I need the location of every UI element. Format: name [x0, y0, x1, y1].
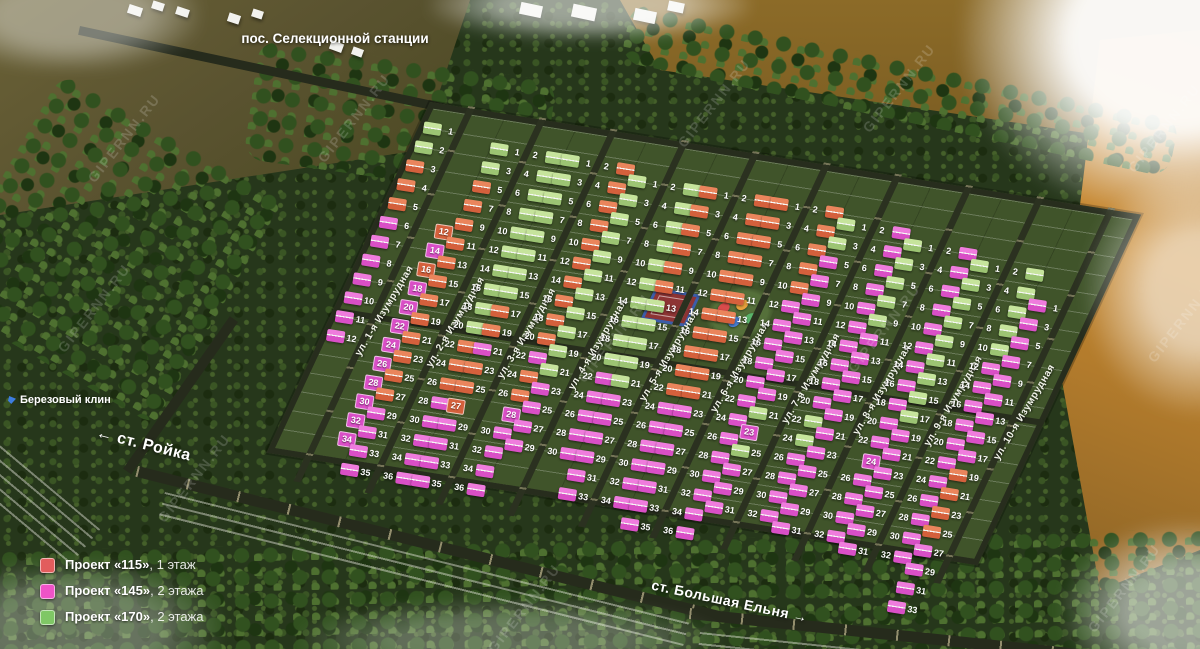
house-icon [855, 504, 875, 519]
plot-number: 4 [523, 169, 529, 179]
plot-number: 2 [879, 225, 885, 235]
plot-number: 18 [671, 344, 682, 354]
plot-number: 10 [635, 258, 646, 268]
plot-number: 32 [814, 529, 825, 539]
plot-number: 19 [777, 392, 788, 402]
plot-number: 25 [404, 373, 415, 383]
plot-number: 18 [462, 301, 473, 311]
house-icon [560, 153, 580, 168]
house-icon [836, 217, 856, 232]
plot-number: 28 [418, 395, 429, 405]
house-icon [628, 336, 648, 351]
plot-number: 5 [497, 185, 503, 195]
house-icon [864, 485, 884, 500]
plot-number: 15 [657, 322, 668, 332]
plot-number: 33 [578, 492, 589, 502]
house-icon [771, 521, 791, 536]
house-icon [699, 347, 719, 362]
plot-number: 3 [430, 164, 436, 174]
plot-number: 30 [618, 457, 629, 467]
plot-number: 3 [643, 198, 649, 208]
plot-number: 18 [599, 333, 610, 343]
plot-number: 14 [893, 359, 904, 369]
plot-number: 14 [479, 263, 490, 273]
plot-number: 15 [928, 395, 939, 405]
plot-number: 15 [861, 375, 872, 385]
legend-label-115: Проект «115» [65, 557, 149, 572]
plot-number: 34 [600, 495, 611, 505]
house-icon [480, 161, 500, 176]
house-icon [429, 436, 449, 451]
house-icon [752, 234, 772, 249]
plot-number: 27 [604, 435, 615, 445]
plot-number: 22 [924, 455, 935, 465]
house-icon [882, 447, 902, 462]
house-icon [868, 313, 888, 328]
plot-number: 5 [977, 302, 983, 312]
house-icon [931, 506, 951, 521]
house-icon [557, 325, 577, 340]
plot-number: 27 [933, 548, 944, 558]
plot-number: 6 [928, 284, 934, 294]
plot-number: 21 [835, 431, 846, 441]
house-icon [375, 387, 395, 402]
plot-number: 28 [764, 471, 775, 481]
house-icon [504, 438, 524, 453]
plot-number: 12 [697, 288, 708, 298]
house-icon [708, 329, 728, 344]
plot-number: 1 [1052, 304, 1058, 314]
plot-number: 26 [498, 388, 509, 398]
plot-number: 35 [640, 522, 651, 532]
plot-number: 33 [369, 448, 380, 458]
house-icon [904, 562, 924, 577]
plot-number: 26 [635, 420, 646, 430]
plot-number: 1 [723, 191, 729, 201]
plot-number: 31 [858, 546, 869, 556]
house-icon [948, 468, 968, 483]
plot-number: 23 [951, 510, 962, 520]
house-icon [908, 391, 928, 406]
plot-number: 17 [510, 309, 521, 319]
house-icon [818, 255, 838, 270]
plot-number: 22 [582, 371, 593, 381]
plot-number: 29 [924, 567, 935, 577]
plot-number: 25 [884, 490, 895, 500]
plot-number: 29 [800, 507, 811, 517]
plot-number: 6 [514, 188, 520, 198]
plot-number: 9 [479, 223, 485, 233]
plot-number: 18 [533, 312, 544, 322]
plot-number: 20 [800, 395, 811, 405]
plot-number: 16 [679, 325, 690, 335]
plot-number: 19 [968, 472, 979, 482]
plot-number: 14 [617, 295, 628, 305]
plot-number: 31 [448, 441, 459, 451]
plot-number: 17 [577, 329, 588, 339]
plot-number: 32 [880, 550, 891, 560]
plot-number: 36 [383, 471, 394, 481]
house-icon [566, 468, 586, 483]
plot-number: 7 [835, 279, 841, 289]
plot-number: 16 [608, 314, 619, 324]
plot-number: 8 [506, 207, 512, 217]
plot-number: 22 [653, 382, 664, 392]
plot-number: 6 [652, 220, 658, 230]
house-icon [637, 317, 657, 332]
house-icon [832, 389, 852, 404]
plot-number: 9 [893, 319, 899, 329]
house-icon [757, 387, 777, 402]
plot-marker[interactable]: 12 [325, 325, 360, 350]
plot-number: 26 [773, 452, 784, 462]
plot-number: 29 [733, 486, 744, 496]
plot-number: 2 [670, 182, 676, 192]
plot-number: 14 [550, 275, 561, 285]
plot-number: 24 [915, 474, 926, 484]
house-icon [410, 312, 430, 327]
house-icon [1027, 298, 1047, 313]
plot-number: 13 [995, 416, 1006, 426]
house-icon [681, 385, 701, 400]
plot-number: 34 [671, 506, 682, 516]
house-icon [618, 193, 638, 208]
masterplan-map: ул. 1-я Изумрудная1234567891011121214161… [0, 0, 1200, 649]
plot-number: 26 [707, 431, 718, 441]
house-icon [566, 306, 586, 321]
plot-number: 9 [959, 339, 965, 349]
legend-suffix-170: , 2 этажа [150, 609, 203, 624]
plot-number: 7 [901, 300, 907, 310]
plot-number: 21 [902, 452, 913, 462]
plot-number: 8 [643, 239, 649, 249]
plot-number: 23 [621, 397, 632, 407]
house-icon [499, 285, 519, 300]
plot-number: 12 [559, 256, 570, 266]
house-icon [725, 291, 745, 306]
house-icon [601, 231, 621, 246]
plot-number: 24 [435, 358, 446, 368]
plot-number: 18 [808, 376, 819, 386]
plot-number: 2 [741, 193, 747, 203]
plot-number: 14 [959, 380, 970, 390]
plot-number: 11 [1004, 397, 1015, 407]
plot-number: 9 [550, 234, 556, 244]
plot-number: 7 [968, 321, 974, 331]
plot-number: 16 [951, 399, 962, 409]
plot-number: 15 [728, 333, 739, 343]
plot-number: 15 [586, 311, 597, 321]
house-icon [593, 412, 613, 427]
plot-number: 25 [542, 405, 553, 415]
plot-number: 20 [453, 320, 464, 330]
plot-number: 9 [688, 266, 694, 276]
legend-color-115 [40, 558, 55, 573]
plot-number: 20 [933, 437, 944, 447]
plot-number: 32 [747, 508, 758, 518]
house-icon [513, 419, 533, 434]
plot-number: 28 [898, 512, 909, 522]
house-icon [379, 216, 399, 231]
plot-number: 32 [680, 488, 691, 498]
house-icon [490, 304, 510, 319]
plot-number: 22 [724, 393, 735, 403]
plot-number: 5 [910, 281, 916, 291]
plot-number: 21 [559, 367, 570, 377]
plot-number: 2 [439, 146, 445, 156]
plot-number: 17 [439, 298, 450, 308]
plot-number: 29 [457, 422, 468, 432]
plot-number: 4 [661, 201, 667, 211]
plot-number: 10 [706, 269, 717, 279]
plot-number: 32 [609, 476, 620, 486]
settlement-label: пос. Селекционной станции [230, 30, 440, 48]
plot-number: 34 [391, 452, 402, 462]
plot-number: 26 [840, 472, 851, 482]
plot-number: 30 [756, 489, 767, 499]
house-icon [704, 500, 724, 515]
plot-number: 11 [537, 252, 548, 262]
plot-number: 3 [577, 178, 583, 188]
house-icon [645, 298, 665, 313]
house-icon [743, 253, 763, 268]
house-icon [952, 296, 972, 311]
legend-item-145: Проект «145», 2 этажа [40, 582, 203, 600]
plot-number: 20 [733, 374, 744, 384]
plot-number: 9 [759, 277, 765, 287]
house-icon [827, 236, 847, 251]
plot-number: 6 [995, 305, 1001, 315]
plot-number: 34 [462, 463, 473, 473]
plot-number: 8 [577, 218, 583, 228]
house-icon [584, 430, 604, 445]
house-icon [792, 312, 812, 327]
legend-item-115: Проект «115», 1 этаж [40, 556, 203, 574]
plot-number: 5 [843, 260, 849, 270]
plot-number: 16 [542, 294, 553, 304]
house-icon [455, 380, 475, 395]
plot-number: 3 [919, 262, 925, 272]
legend-suffix-115: , 1 этаж [149, 557, 195, 572]
plot-number: 1 [652, 179, 658, 189]
house-icon [913, 543, 933, 558]
house-icon [734, 272, 754, 287]
plot-number: 29 [524, 443, 535, 453]
house-icon [646, 461, 666, 476]
house-icon [903, 238, 923, 253]
house-icon [698, 185, 718, 200]
plot-number: 30 [547, 446, 558, 456]
plot-marker[interactable]: 31 [704, 496, 739, 521]
plot-number: 23 [826, 450, 837, 460]
plot-number: 27 [742, 467, 753, 477]
plot-number: 18 [942, 418, 953, 428]
plot-number: 27 [533, 424, 544, 434]
plot-number: 33 [649, 503, 660, 513]
plot-number: 16 [750, 337, 761, 347]
plot-number: 8 [986, 323, 992, 333]
house-icon [387, 197, 407, 212]
legend-label-170: Проект «170» [65, 609, 150, 624]
house-icon [841, 370, 861, 385]
plot-number: 35 [431, 478, 442, 488]
plot-number: 9 [826, 298, 832, 308]
plot-number: 22 [515, 350, 526, 360]
plot-number: 3 [1044, 322, 1050, 332]
house-icon [437, 417, 457, 432]
plot-number: 19 [844, 412, 855, 422]
plot-number: 1 [928, 243, 934, 253]
plot-number-badge: 27 [446, 397, 466, 415]
house-icon [343, 291, 363, 306]
house-icon [489, 142, 509, 157]
house-icon [838, 541, 858, 556]
plot-number: 25 [684, 427, 695, 437]
plot-number: 11 [604, 273, 615, 283]
house-icon [961, 277, 981, 292]
house-icon [717, 310, 737, 325]
house-icon [340, 463, 360, 478]
house-icon [664, 423, 684, 438]
plot-number: 25 [942, 529, 953, 539]
house-icon [423, 121, 443, 136]
plot-number: 25 [475, 384, 486, 394]
plot-number: 25 [613, 416, 624, 426]
plot-number: 24 [715, 412, 726, 422]
plot-number: 27 [395, 392, 406, 402]
plot-number: 13 [870, 356, 881, 366]
plot-number: 5 [412, 202, 418, 212]
house-icon [934, 334, 954, 349]
plot-number: 13 [737, 314, 748, 324]
plot-number: 7 [559, 215, 565, 225]
house-icon [629, 498, 649, 513]
plot-number: 17 [919, 414, 930, 424]
plot-number: 5 [777, 240, 783, 250]
plot-number: 23 [893, 471, 904, 481]
plot-number: 2 [532, 150, 538, 160]
landmark-pin-icon [8, 396, 16, 404]
house-icon [401, 331, 421, 346]
plot-number: 19 [639, 360, 650, 370]
plot-number: 8 [852, 282, 858, 292]
plot-number: 19 [568, 348, 579, 358]
house-icon [405, 159, 425, 174]
plot-number: 30 [480, 426, 491, 436]
house-icon [859, 332, 879, 347]
plot-number: 5 [634, 217, 640, 227]
plot-number: 33 [907, 604, 918, 614]
plot-number: 13 [665, 303, 676, 313]
landmark-label: Березовый клин [8, 394, 111, 408]
plot-number: 7 [1026, 360, 1032, 370]
plot-number: 31 [377, 430, 388, 440]
house-icon [748, 406, 768, 421]
house-icon [957, 449, 977, 464]
house-icon [801, 293, 821, 308]
plot-number: 5 [568, 196, 574, 206]
house-icon [655, 442, 675, 457]
plot-number: 7 [395, 240, 401, 250]
plot-number: 20 [591, 352, 602, 362]
plot-number: 29 [866, 527, 877, 537]
plot-number: 28 [698, 450, 709, 460]
plot-number: 26 [564, 409, 575, 419]
plot-number: 28 [556, 427, 567, 437]
house-icon [887, 600, 907, 615]
plot-number: 22 [444, 339, 455, 349]
house-icon [672, 242, 692, 257]
house-icon [548, 344, 568, 359]
plot-number: 11 [946, 358, 957, 368]
plot-number: 25 [751, 448, 762, 458]
plot-number: 1 [585, 159, 591, 169]
house-icon [815, 426, 835, 441]
plot-number: 4 [803, 224, 809, 234]
house-icon [885, 276, 905, 291]
house-icon [690, 366, 710, 381]
plot-number: 31 [724, 505, 735, 515]
plot-number: 23 [693, 409, 704, 419]
plot-number: 9 [377, 278, 383, 288]
plot-number: 4 [732, 212, 738, 222]
plot-number: 18 [875, 397, 886, 407]
house-icon [575, 449, 595, 464]
plot-number: 6 [723, 231, 729, 241]
plot-number: 29 [595, 454, 606, 464]
plot-number: 21 [768, 410, 779, 420]
plot-number: 1 [861, 223, 867, 233]
house-icon [414, 140, 434, 155]
plot-number: 27 [875, 508, 886, 518]
plot-number: 13 [457, 260, 468, 270]
house-icon [992, 374, 1012, 389]
house-icon [788, 483, 808, 498]
house-icon [873, 466, 893, 481]
house-icon [922, 524, 942, 539]
plot-number: 17 [977, 454, 988, 464]
plot-number: 12 [835, 320, 846, 330]
plot-number: 27 [675, 446, 686, 456]
plot-number: 35 [360, 467, 371, 477]
house-icon [824, 408, 844, 423]
plot-marker[interactable]: 29 [503, 434, 538, 459]
plot-number: 15 [448, 279, 459, 289]
plot-number: 3 [986, 283, 992, 293]
house-icon [850, 351, 870, 366]
plot-number: 10 [977, 342, 988, 352]
house-icon [454, 217, 474, 232]
plot-number: 24 [573, 390, 584, 400]
house-icon [574, 287, 594, 302]
house-icon [558, 487, 578, 502]
plot-number: 25 [817, 469, 828, 479]
house-icon [926, 353, 946, 368]
plot-number: 24 [644, 401, 655, 411]
plot-number: 10 [363, 296, 374, 306]
plot-number: 15 [794, 354, 805, 364]
house-icon [370, 235, 390, 250]
plot-number: 29 [386, 411, 397, 421]
house-icon [917, 372, 937, 387]
plot-number: 22 [858, 435, 869, 445]
plot-number: 1 [514, 147, 520, 157]
plot-number: 1 [447, 127, 453, 137]
plot-number: 3 [505, 166, 511, 176]
house-icon [349, 444, 369, 459]
plot-number: 10 [910, 322, 921, 332]
plot-number: 20 [662, 363, 673, 373]
